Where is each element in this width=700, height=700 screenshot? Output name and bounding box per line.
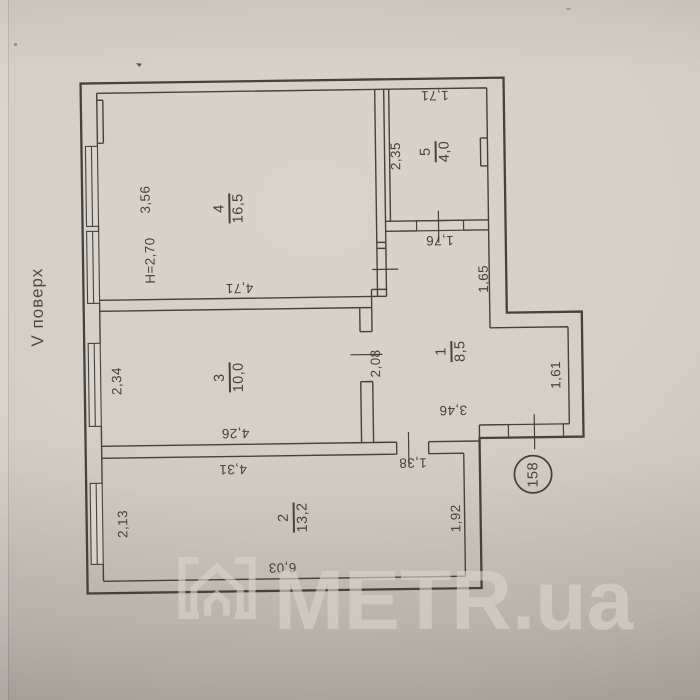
ceiling-height-note: H=2,70 — [142, 237, 158, 284]
dim-room4-width: 3,56 — [137, 186, 152, 214]
dim-hall-depth: 1,61 — [548, 361, 563, 389]
room-label-2: 2 13,2 — [277, 502, 311, 532]
dim-room3-width-outer: 4,31 — [219, 462, 247, 477]
room-area: 10,0 — [231, 362, 247, 392]
room-area: 16,5 — [231, 193, 247, 223]
room-label-1: 1 8,5 — [434, 340, 468, 362]
floor-plan-drawing — [0, 0, 700, 700]
room-number: 2 — [277, 513, 292, 522]
room-area: 8,5 — [453, 340, 469, 362]
room-area: 13,2 — [295, 502, 311, 532]
dim-room2-width: 6,03 — [268, 560, 296, 575]
room-number: 5 — [419, 147, 434, 156]
dim-room4-length: 4,71 — [225, 281, 253, 296]
room-number: 3 — [213, 373, 228, 382]
door-room5 — [416, 220, 463, 231]
floor-plan: V поверх 3,56 H=2,70 4 16,5 4,71 1,71 2,… — [0, 0, 700, 700]
dim-hall-width: 3,46 — [439, 403, 467, 418]
room-area: 4,0 — [437, 141, 453, 163]
outer-walls — [81, 77, 586, 594]
floor-label: V поверх — [27, 268, 48, 347]
room-number: 1 — [434, 347, 449, 356]
dim-room5-depth: 2,35 — [388, 142, 403, 170]
room-label-4: 4 16,5 — [212, 193, 246, 223]
entrance-door — [508, 424, 563, 438]
window-symbols — [85, 146, 103, 564]
dim-corridor-width: 1,76 — [426, 233, 454, 248]
apartment-number: 158 — [525, 461, 541, 487]
dim-hall-wall: 2,08 — [368, 349, 383, 377]
dim-room2-depth: 2,13 — [115, 510, 130, 538]
dim-room3-depth: 2,34 — [109, 367, 124, 395]
floorplan-photo: V поверх 3,56 H=2,70 4 16,5 4,71 1,71 2,… — [0, 0, 700, 700]
dim-room2-right: 1,92 — [448, 504, 463, 532]
dim-hall-door: 1,38 — [399, 455, 427, 470]
dim-room3-width: 4,26 — [221, 426, 249, 441]
room-number: 4 — [212, 204, 227, 213]
inner-walls — [97, 87, 572, 581]
dim-room5-width: 1,71 — [421, 88, 449, 103]
room-label-5: 5 4,0 — [419, 141, 453, 163]
dim-corridor-depth: 1,65 — [476, 265, 491, 293]
room-label-3: 3 10,0 — [213, 362, 247, 392]
